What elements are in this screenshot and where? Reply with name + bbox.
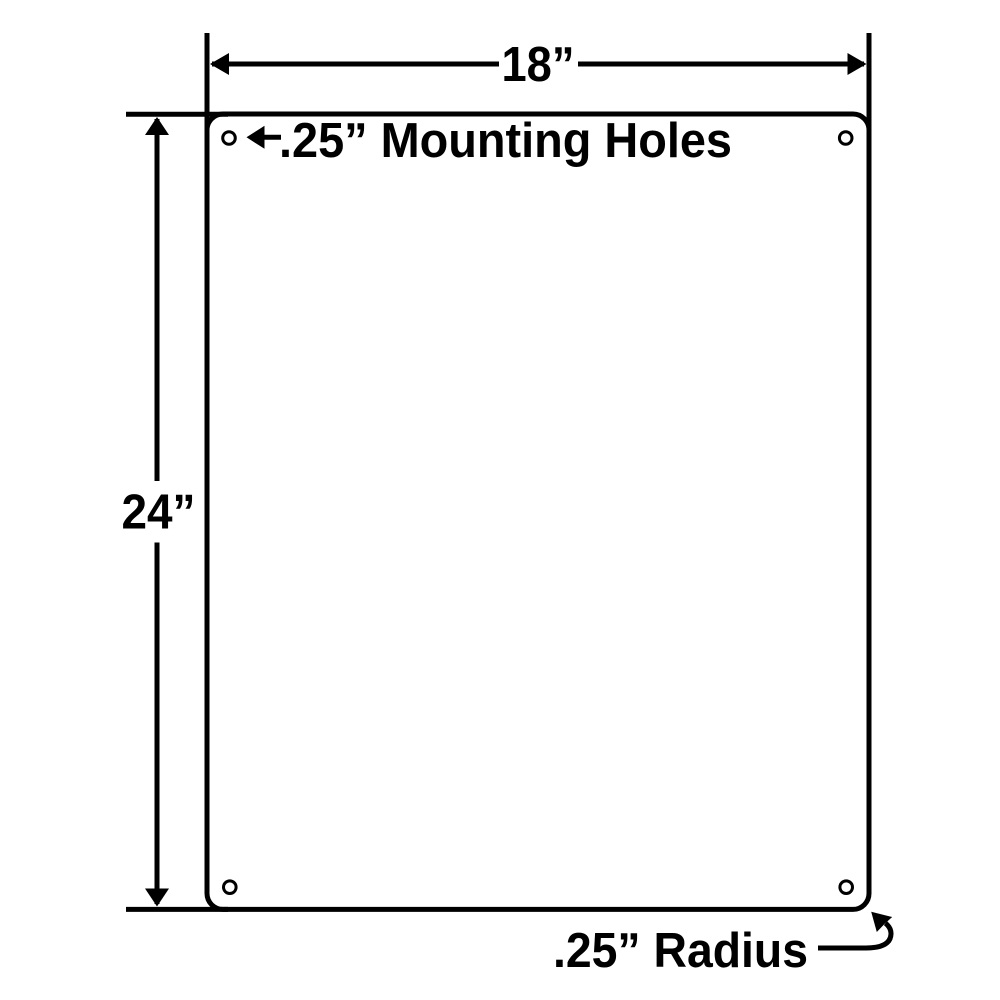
svg-text:.25” Radius: .25” Radius xyxy=(553,924,808,978)
svg-text:.25” Mounting Holes: .25” Mounting Holes xyxy=(279,114,732,168)
svg-text:18”: 18” xyxy=(502,38,575,92)
svg-text:24”: 24” xyxy=(122,486,196,540)
